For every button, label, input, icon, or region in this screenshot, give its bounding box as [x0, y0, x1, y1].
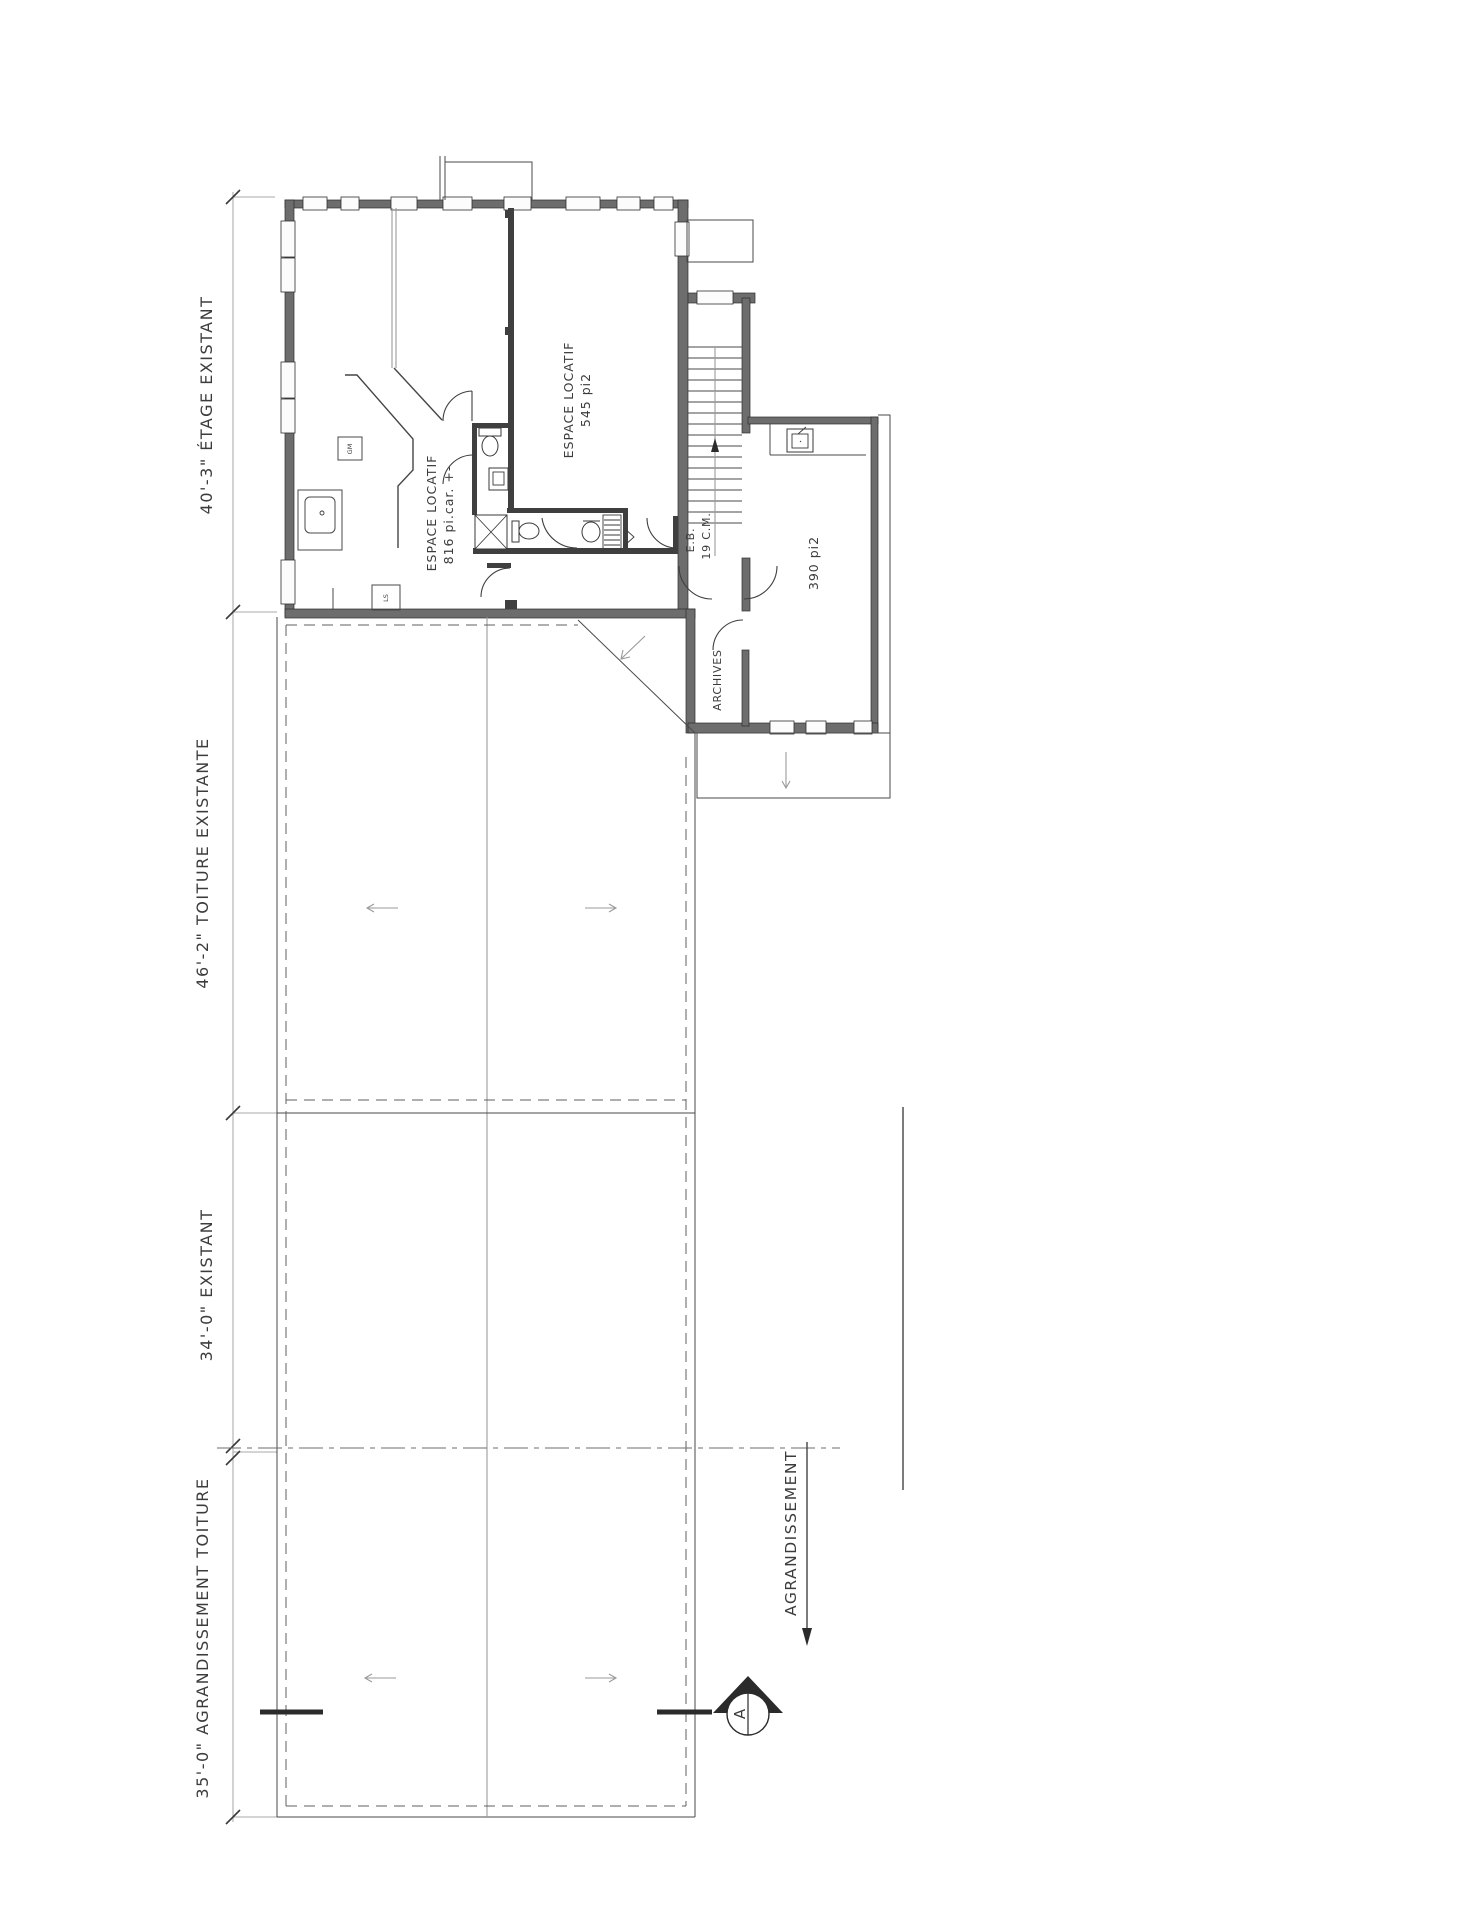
section-marker-a	[713, 1676, 783, 1735]
room-label-locatif-b-area: 545 pi2	[578, 373, 593, 427]
sink	[770, 424, 866, 455]
dimension-label-existant: 34'-0" EXISTANT	[197, 1209, 216, 1362]
agrandissement-arrow	[802, 1442, 812, 1646]
dimension-label-agrandissement: 35'-0" AGRANDISSEMENT TOITURE	[193, 1477, 212, 1798]
floor-plan-svg: 40'-3" ÉTAGE EXISTANT 46'-2" TOITURE EXI…	[0, 0, 1483, 1920]
exterior-walls	[285, 200, 878, 733]
stair-label-cm: 19 C.M.	[700, 512, 713, 559]
roof-drain-arrow	[782, 752, 790, 788]
room-label-locatif-a-area: 816 pi.car. +-	[441, 466, 456, 565]
interior-partitions	[333, 208, 678, 610]
appliance-label-gm: GM	[346, 444, 354, 455]
stair-direction-arrow	[711, 438, 719, 452]
roof-slope-arrow-left-lower	[365, 1674, 396, 1682]
room-label-390: 390 pi2	[806, 536, 821, 590]
dimension-label-toiture: 46'-2" TOITURE EXISTANTE	[193, 737, 212, 988]
staircase	[688, 347, 742, 556]
section-marker-letter: A	[731, 1708, 749, 1719]
roof-slope-arrow-left	[367, 904, 398, 912]
appliance-label-ls: LS	[382, 594, 390, 602]
toilet	[512, 521, 539, 542]
room-label-locatif-b-name: ESPACE LOCATIF	[561, 342, 576, 459]
shower	[475, 515, 507, 549]
room-label-locatif-a-name: ESPACE LOCATIF	[424, 455, 439, 572]
roof-slope-arrow-right-lower	[585, 1674, 616, 1682]
kitchen-counter	[298, 490, 342, 550]
roof-slope-arrow-right	[585, 904, 616, 912]
agrandissement-label: AGRANDISSEMENT	[782, 1450, 800, 1616]
dimension-line	[226, 190, 277, 1824]
dimension-label-etage: 40'-3" ÉTAGE EXISTANT	[197, 296, 216, 515]
shelving-hatch	[603, 515, 634, 549]
room-label-archives: ARCHIVES	[711, 649, 724, 711]
sink	[582, 521, 600, 542]
stair-label-eb: E.B.	[684, 528, 697, 553]
sink	[489, 468, 508, 490]
toilet	[479, 428, 501, 456]
windows	[281, 197, 872, 734]
roof-valley-arrow	[621, 636, 645, 659]
drawing-sheet: 40'-3" ÉTAGE EXISTANT 46'-2" TOITURE EXI…	[0, 0, 1483, 1920]
